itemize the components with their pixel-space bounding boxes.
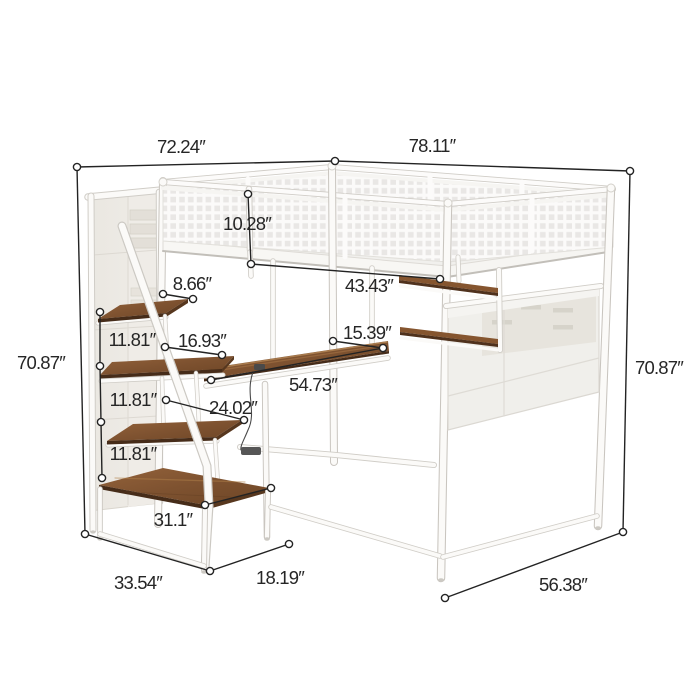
svg-text:43.43″: 43.43″ [345,275,394,296]
svg-text:72.24″: 72.24″ [157,136,206,157]
svg-text:18.19″: 18.19″ [256,567,305,588]
svg-text:33.54″: 33.54″ [114,572,163,593]
svg-text:8.66″: 8.66″ [173,273,213,294]
svg-text:11.81″: 11.81″ [110,443,158,464]
svg-text:56.38″: 56.38″ [539,574,588,595]
svg-text:31.1″: 31.1″ [154,509,194,530]
svg-text:10.28″: 10.28″ [223,213,272,234]
svg-text:11.81″: 11.81″ [109,329,157,350]
svg-text:78.11″: 78.11″ [409,135,457,156]
svg-text:70.87″: 70.87″ [17,352,66,373]
svg-text:11.81″: 11.81″ [110,389,158,410]
svg-text:16.93″: 16.93″ [178,330,227,351]
svg-text:15.39″: 15.39″ [343,322,392,343]
svg-text:54.73″: 54.73″ [289,374,338,395]
svg-text:70.87″: 70.87″ [635,357,684,378]
svg-text:24.02″: 24.02″ [209,397,258,418]
